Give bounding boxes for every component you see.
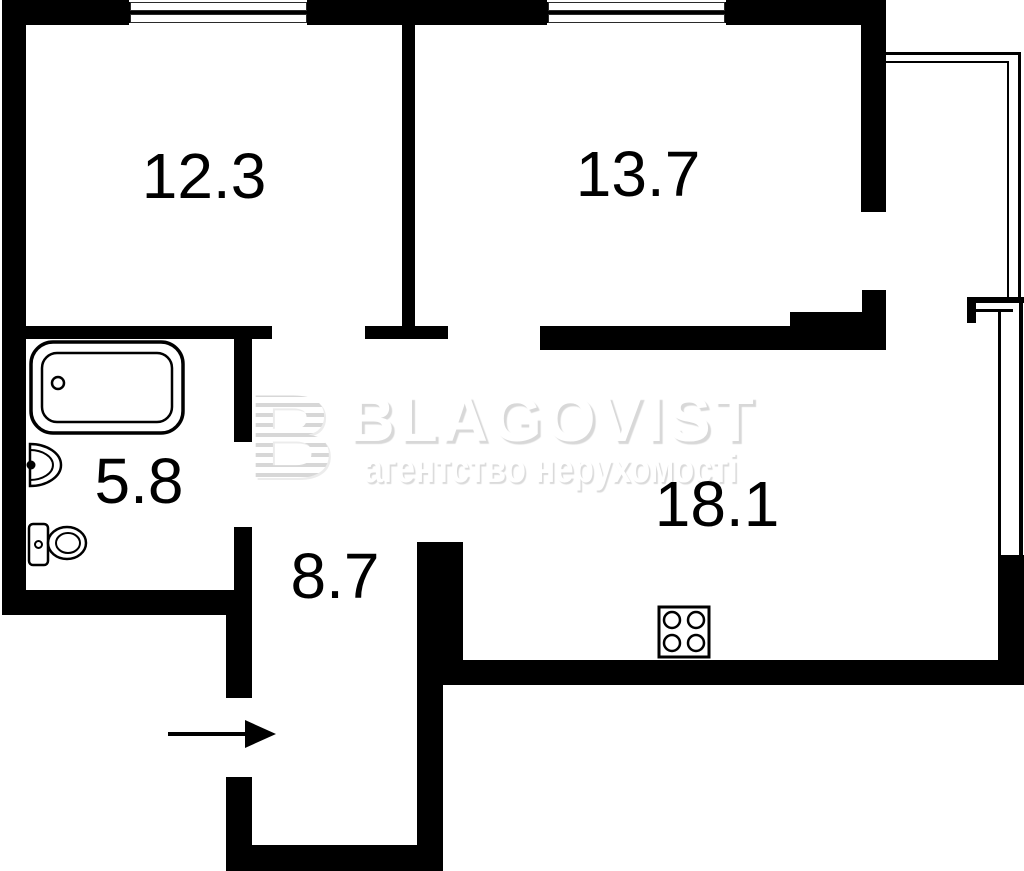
- wall-step-b: [862, 290, 886, 312]
- wall-bathroom-right-upper: [234, 339, 252, 442]
- balcony-glazing-icon: [1019, 303, 1023, 556]
- stove-icon: [659, 607, 709, 657]
- balcony-glazing-icon: [886, 52, 1021, 55]
- balcony-glazing-icon: [967, 297, 1024, 303]
- wall-hall-right-lower: [417, 662, 443, 871]
- wall-bathroom-bottom: [2, 590, 252, 615]
- area-label-living-kitchen: 18.1: [655, 472, 780, 536]
- window-icon: [129, 2, 308, 23]
- wall-hall-right-upper: [417, 542, 463, 662]
- balcony-glazing-icon: [1018, 52, 1021, 297]
- wall-entry-left-upper: [226, 615, 252, 698]
- sink-icon: [27, 444, 62, 486]
- toilet-icon: [29, 524, 86, 565]
- bathtub-icon: [31, 342, 183, 433]
- wall-bathroom-top: [2, 326, 272, 339]
- wall-bedroom-divider: [402, 25, 415, 326]
- area-label-bedroom-2: 13.7: [576, 142, 701, 206]
- wall-living-bottom: [441, 660, 1024, 685]
- balcony-glazing-icon: [886, 61, 1007, 63]
- balcony-glazing-icon: [967, 309, 1013, 312]
- wall-living-right: [998, 555, 1024, 685]
- window-pane: [130, 14, 307, 23]
- entrance-arrow-icon: [168, 720, 276, 748]
- window-icon: [547, 2, 726, 23]
- wall-top-middle: [307, 0, 547, 25]
- area-label-bedroom-1: 12.3: [142, 144, 267, 208]
- watermark-logo-b: B: [248, 377, 335, 497]
- wall-bathroom-right-lower: [234, 527, 252, 590]
- wall-bedroom-divider-stub: [365, 326, 448, 339]
- floor-plan: B BLAGOVIST агентство нерухомості 12.3 1…: [0, 0, 1024, 871]
- window-pane: [548, 14, 725, 23]
- area-label-hallway: 8.7: [291, 544, 380, 608]
- area-label-bathroom: 5.8: [95, 449, 184, 513]
- wall-below-bedroom2: [540, 326, 886, 350]
- wall-hall-bottom: [226, 845, 441, 871]
- watermark-brand-text: BLAGOVIST: [348, 387, 757, 451]
- wall-bedroom2-right: [861, 25, 886, 212]
- wall-left: [2, 0, 26, 615]
- window-pane: [130, 2, 307, 11]
- wall-top-right: [726, 0, 886, 25]
- balcony-glazing-icon: [998, 312, 1001, 556]
- balcony-glazing-icon: [1007, 61, 1009, 297]
- window-pane: [548, 2, 725, 11]
- wall-step-a: [790, 312, 886, 326]
- wall-balcony-pillar: [967, 303, 976, 323]
